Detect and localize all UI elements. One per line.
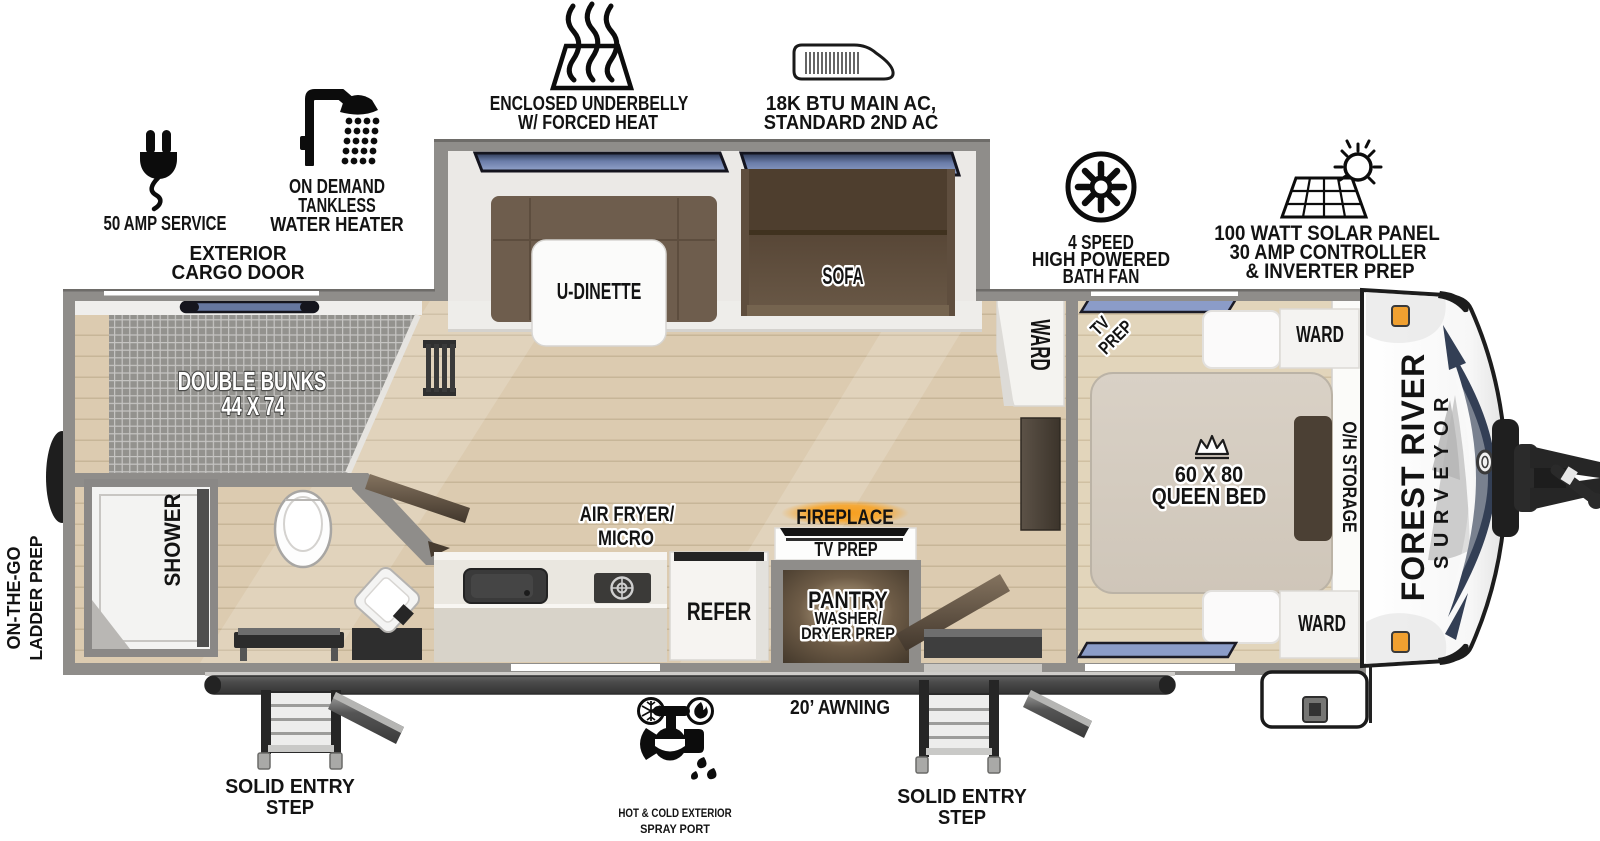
svg-text:TV PREP: TV PREP [814, 538, 878, 561]
svg-text:STEP: STEP [938, 807, 986, 829]
svg-text:AIR FRYER/: AIR FRYER/ [580, 503, 675, 526]
svg-text:LADDER PREP: LADDER PREP [26, 535, 46, 660]
svg-text:O/H STORAGE: O/H STORAGE [1339, 421, 1361, 533]
svg-text:44 X 74: 44 X 74 [221, 392, 285, 421]
svg-text:20’ AWNING: 20’ AWNING [790, 696, 890, 718]
svg-text:WARD: WARD [1298, 611, 1346, 637]
svg-text:SOLID ENTRY: SOLID ENTRY [225, 776, 355, 798]
svg-text:WATER HEATER: WATER HEATER [270, 213, 404, 236]
svg-text:ON-THE-GO: ON-THE-GO [4, 547, 24, 650]
svg-text:QUEEN BED: QUEEN BED [1152, 483, 1266, 509]
svg-text:CARGO DOOR: CARGO DOOR [172, 262, 305, 285]
svg-text:& INVERTER PREP: & INVERTER PREP [1245, 260, 1414, 283]
svg-text:DRYER PREP: DRYER PREP [801, 625, 895, 643]
svg-text:U-DINETTE: U-DINETTE [557, 279, 642, 305]
svg-text:SOFA: SOFA [822, 264, 863, 290]
svg-text:WARD: WARD [1025, 319, 1057, 370]
svg-text:SURVEYOR: SURVEYOR [1431, 389, 1453, 569]
svg-text:WARD: WARD [1296, 322, 1344, 348]
svg-text:W/ FORCED HEAT: W/ FORCED HEAT [518, 111, 658, 133]
svg-text:BATH FAN: BATH FAN [1063, 265, 1140, 287]
svg-text:MICRO: MICRO [598, 527, 654, 550]
svg-text:HOT & COLD EXTERIOR: HOT & COLD EXTERIOR [618, 807, 732, 820]
svg-text:FOREST RIVER: FOREST RIVER [1395, 353, 1431, 601]
svg-text:50 AMP SERVICE: 50 AMP SERVICE [104, 212, 227, 235]
svg-text:SPRAY PORT: SPRAY PORT [640, 824, 710, 836]
svg-text:SOLID ENTRY: SOLID ENTRY [897, 786, 1027, 808]
svg-text:REFER: REFER [687, 597, 751, 625]
svg-text:SHOWER: SHOWER [160, 493, 185, 586]
svg-text:FIREPLACE: FIREPLACE [796, 507, 894, 530]
svg-text:STEP: STEP [266, 797, 314, 819]
svg-text:STANDARD 2ND AC: STANDARD 2ND AC [764, 112, 939, 134]
